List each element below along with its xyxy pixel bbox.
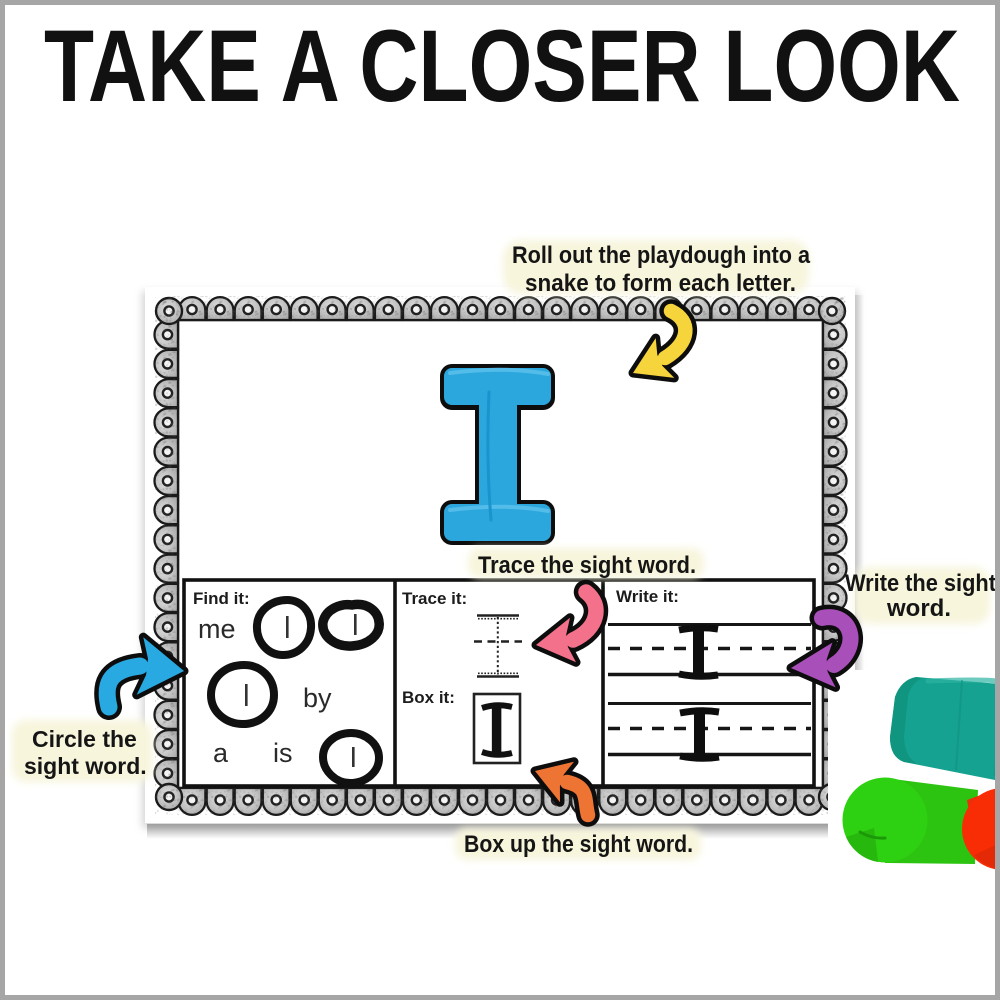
svg-text:Write the sight: Write the sight xyxy=(845,570,996,597)
svg-text:me: me xyxy=(198,614,236,644)
svg-text:Box it:: Box it: xyxy=(402,688,455,707)
svg-text:Roll out the playdough into a: Roll out the playdough into a xyxy=(512,242,811,269)
svg-text:a: a xyxy=(213,738,229,768)
svg-text:Box up the sight word.: Box up the sight word. xyxy=(464,831,693,858)
svg-text:Trace it:: Trace it: xyxy=(402,589,467,608)
svg-text:snake to form each letter.: snake to form each letter. xyxy=(525,270,796,297)
svg-text:sight word.: sight word. xyxy=(24,753,147,779)
svg-text:is: is xyxy=(273,738,293,768)
svg-text:by: by xyxy=(303,683,332,713)
svg-text:TAKE A CLOSER LOOK: TAKE A CLOSER LOOK xyxy=(44,9,960,123)
svg-text:Trace the sight word.: Trace the sight word. xyxy=(478,552,696,579)
svg-text:Circle the: Circle the xyxy=(32,726,137,752)
svg-text:word.: word. xyxy=(886,595,951,622)
svg-text:Write it:: Write it: xyxy=(616,587,679,606)
svg-text:Find it:: Find it: xyxy=(193,589,250,608)
